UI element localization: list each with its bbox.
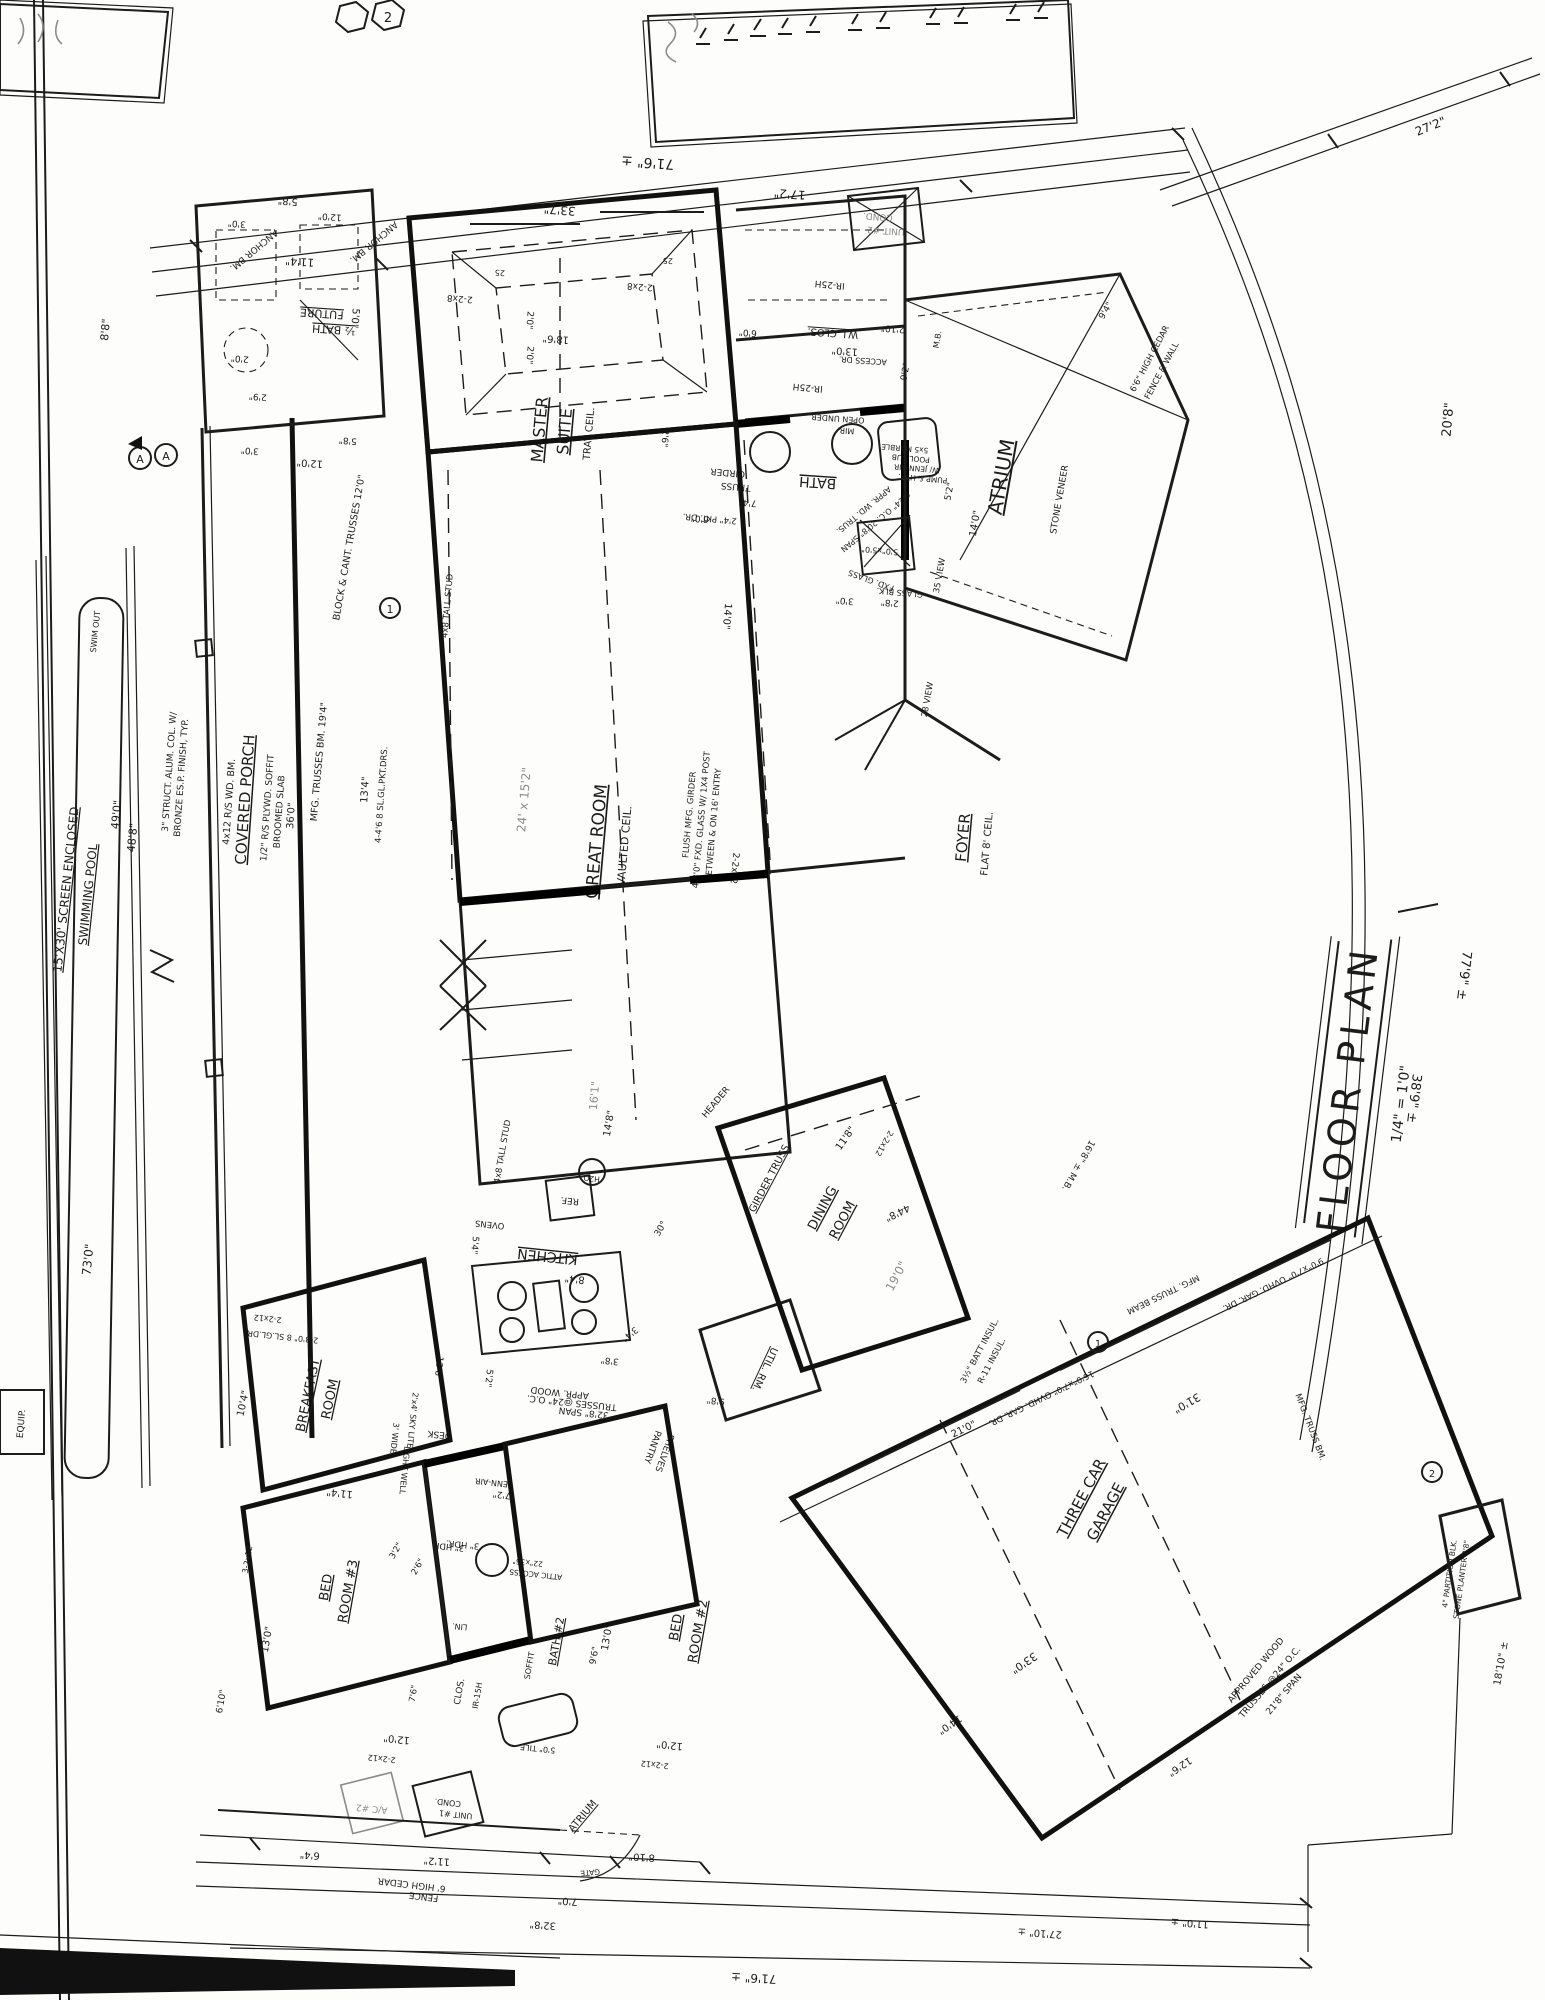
master-name-2: SUITE <box>553 408 576 456</box>
master-tick-1: 25 <box>494 268 505 278</box>
dim-top-2: 17'2" <box>773 186 806 202</box>
porch-note-2: BROOMED SLAB <box>272 775 287 849</box>
future-dim-2: 2'9" <box>248 390 267 401</box>
wic-name: W.I. CLOS. <box>807 325 858 340</box>
atrium-dim-2: 5'2" <box>944 482 957 502</box>
master-suite: MASTER SUITE TRAY CEIL. 18'6" 2'0" 2'0" … <box>409 190 736 463</box>
wic-access: ACCESS DR. <box>838 354 887 366</box>
svg-text:A: A <box>162 450 170 463</box>
fence-dim-3: 7'0" <box>557 1894 578 1906</box>
atrium-stone-veneer: STONE VENEER <box>1049 464 1071 534</box>
garage: THREE CAR GARAGE 31'0" 33'0" 21'0" 14'0"… <box>780 1202 1492 1838</box>
equipment-pads: COND. UNIT #1 A/C #2 <box>341 1772 484 1837</box>
bath-dim-2: 3'0" <box>835 594 854 606</box>
great-room-name: GREAT ROOM <box>582 783 612 899</box>
cond-unit-1b: UNIT #1 <box>439 1808 473 1820</box>
bed3-name-2: ROOM #3 <box>336 1559 362 1625</box>
title-block: FLOOR PLAN 1/4" = 1'0" <box>1294 928 1429 1248</box>
hex-markers-top: 2 <box>336 0 404 32</box>
marble-tub: 5x5 MARBLE POOL TUB W/ JENN-AIR PUMP & H… <box>877 417 948 485</box>
porch-truss-note-2: MFG. TRUSSES BM. 19'4" <box>309 702 330 822</box>
jennair-label: JENN-AIR <box>474 1476 512 1489</box>
gate-label: GATE <box>580 1867 601 1878</box>
porch-doors-note: 4-4'6 8 SL.GL.PKT.DRS. <box>374 746 391 843</box>
pool-equipment: EQUIP. <box>0 1390 44 1454</box>
stone-planter: 4" PARTITION BLK. STONE PLANTER 2'8" 18'… <box>1308 1500 1520 1952</box>
bath2-tile: 5'0" TILE <box>520 1742 556 1755</box>
fence-dim-1: 6'4" <box>299 1848 320 1860</box>
h2o-label: H2O <box>583 1173 600 1184</box>
fence-dim-4: 8'10" <box>628 1850 655 1863</box>
kitchen-name: KITCHEN <box>517 1245 579 1267</box>
future-dim-3: 2'0" <box>230 352 249 363</box>
equip-label: EQUIP. <box>16 1409 28 1439</box>
foyer-name: FOYER <box>952 813 974 863</box>
master-dim-1: 2'0" <box>523 311 535 330</box>
kitchen: KITCHEN 8'4" REF. H2O OVENS 5'4" 5'2" 13… <box>388 872 790 1551</box>
dining-dim: 11'8" <box>834 1125 858 1153</box>
svg-text:2: 2 <box>1429 1469 1435 1480</box>
bed2-dim-2: 12'0" <box>656 1738 683 1752</box>
cond-unit-1a: COND. <box>434 1797 461 1809</box>
cooktop-island <box>472 1252 630 1354</box>
dim-planter: 18'10" ± <box>1492 1641 1511 1687</box>
wall-marker-garage-2: 2 <box>1422 1462 1442 1482</box>
counter-lines <box>462 950 572 1060</box>
great-room: GREAT ROOM VAULTED CEIL. 24' x 15'2" FLU… <box>428 258 770 1184</box>
tub <box>496 1691 579 1748</box>
dim-left-v: 8'8" <box>98 318 113 341</box>
cond-unit-2-label2: UNIT #2 <box>867 224 905 237</box>
stud-wall-2: 4x8 TALL STUD <box>493 1119 514 1185</box>
wic-dim-2: 2'10" <box>881 322 905 334</box>
utility-room: UTIL. RM. 9'8" <box>700 1300 820 1420</box>
stud-wall-1: 4x8 TALL STUD <box>440 573 456 639</box>
attic-access-1: 22"x36" <box>512 1556 543 1568</box>
corner-sketch-topcenter <box>643 0 1077 147</box>
future-dim-top: 5'8" <box>277 194 298 206</box>
master-dim-1b: 2'0" <box>523 346 535 365</box>
angle-note: 30° <box>653 1220 670 1239</box>
svg-text:1: 1 <box>387 603 394 616</box>
garage-beam-1: MFG. TRUSS BEAM <box>1125 1272 1201 1316</box>
bath-fxd-1: 5'0"x5'0" <box>861 544 899 556</box>
master-ceil: TRAY CEIL. <box>582 407 598 462</box>
porch-name: COVERED PORCH <box>231 734 258 865</box>
porch-truss-note-1: BLOCK & CANT. TRUSSES 12'0" <box>331 474 368 621</box>
bottom-dim-7: 11'0" ± <box>1170 1916 1209 1930</box>
bath2-ir: IR-15H <box>471 1682 484 1710</box>
util-dim: 9'8" <box>706 1394 725 1406</box>
bath2-dim-1: 3'2" <box>388 1541 405 1561</box>
garage-dim-6: 12'6" <box>1165 1754 1193 1778</box>
great-room-pencil: 24' x 15'2" <box>514 767 534 833</box>
lightwell-1: 3' WIDE <box>388 1422 400 1454</box>
bath2-dim-3: 7'6" <box>408 1684 421 1703</box>
bath-mirror-2: MIR. <box>837 425 855 435</box>
bath-dim-3: 2'8" <box>880 596 899 608</box>
kitchen-dim-1: 8'4" <box>564 1272 585 1285</box>
bottom-overall-dim: 71'6" ± <box>731 1970 777 1986</box>
bed3-dim-2: 12'0" <box>383 1732 410 1746</box>
breakfast-header: 2-2x12 <box>253 1313 282 1325</box>
future-half-bath: FUTURE ½ BATH 5'0" 2'9" 2'0" ANCHOR BM. … <box>196 190 399 469</box>
bath2-dim-2: 2'6" <box>410 1557 427 1577</box>
future-anchor-1: ANCHOR BM. <box>227 227 279 273</box>
master-header-2: 2-2x8 <box>626 280 653 292</box>
foyer: FOYER FLAT 8' CEIL. 2-2x12 30° <box>653 590 1000 1238</box>
dim-right-long: 77'9" ± <box>1453 950 1474 1001</box>
atrium-lower-label: ATRIUM <box>567 1798 600 1834</box>
svg-text:A: A <box>136 453 144 466</box>
bedroom-2: BED ROOM #2 13'0" 12'0" 2-2x12 <box>505 1406 711 1770</box>
bath2-name: BATH #2 <box>546 1616 567 1666</box>
great-dim-1: 14'8" <box>602 1110 617 1138</box>
bed3-header: 2-2x12 <box>367 1753 396 1765</box>
atrium-view-1: 35 VIEW <box>932 557 948 594</box>
bedroom-3: BED ROOM #3 13'0" 12'0" 2-2x12 6'10" 3-2… <box>215 1462 450 1764</box>
cond-unit-2-label: COND. <box>863 210 894 222</box>
ref-label: REF. <box>560 1194 579 1206</box>
master-header-1: 2-2x8 <box>446 292 473 304</box>
great-dim-2: 14'0" <box>720 603 733 630</box>
pool-dim-a: 49'0" <box>109 799 125 829</box>
atrium-dim-4: 9'4" <box>1097 301 1115 322</box>
skylite-label: 2'x4' SKY LITE <box>405 1392 420 1449</box>
wall-marker-1: 1 <box>380 598 400 618</box>
garage-dim-2: 33'0" <box>1008 1649 1039 1676</box>
section-marker-a: A A <box>128 436 177 469</box>
bed3-dim-1: 13'0" <box>260 1626 275 1654</box>
wall-marker-garage-1: 1 <box>1088 1332 1108 1352</box>
fence-dim-5: 32'8" <box>529 1918 556 1931</box>
bed3-name-1: BED <box>317 1573 336 1602</box>
atrium-name: ATRIUM <box>983 437 1020 516</box>
atrium-dim-3: 9'2" <box>900 362 913 382</box>
bed2-name-1: BED <box>667 1613 686 1642</box>
garage-dim-5: 44'8" <box>883 1202 912 1223</box>
ir-note-2: IR-25H <box>792 381 823 394</box>
rear-fence: 6'4" 11'2" 7'0" 8'10" 32'8" 6' HIGH CEDA… <box>196 1798 1312 1986</box>
bath2-soffit: SOFFIT <box>523 1651 537 1680</box>
breakfast-dim-1: 10'4" <box>235 1389 251 1417</box>
hex-marker-2: 2 <box>384 11 392 26</box>
dining-header: HEADER <box>701 1085 733 1120</box>
breakfast-name-2: ROOM <box>319 1378 342 1421</box>
pool-name-2: SWIMMING POOL <box>76 843 101 946</box>
scan-black-bar <box>0 1948 515 1995</box>
wic-dim-1: 6'0" <box>738 326 757 337</box>
garage-dim-1: 31'0" <box>1171 1390 1203 1416</box>
attic-access-2: ATTIC ACCESS <box>509 1567 563 1582</box>
bed3-dim-3: 6'10" <box>215 1689 229 1714</box>
kitchen-dim-7: 3'8" <box>600 1354 619 1366</box>
atrium-dim-1: 14'0" <box>968 510 983 538</box>
dim-right-top: 20'8" <box>1440 402 1458 438</box>
foyer-ceil: FLAT 8' CEIL. <box>979 811 996 876</box>
bath2-linen: LIN. <box>452 1621 468 1632</box>
great-room-ceil: VAULTED CEIL. <box>615 805 635 886</box>
bed2-header: 2-2x12 <box>640 1759 669 1771</box>
future-dim-9: 3'0" <box>240 444 259 455</box>
pool-dim-b: 48'8" <box>125 822 141 852</box>
future-bath-name-1: FUTURE <box>299 305 344 321</box>
garage-beam-2: MFG. TRUSS BM. <box>1292 1392 1327 1462</box>
kitchen-dim-6: 7'2" <box>492 1488 511 1500</box>
bottom-dim-6: 27'10" ± <box>1017 1925 1062 1939</box>
covered-porch: COVERED PORCH 1/2" R/S PLYWD. SOFFIT BRO… <box>128 418 400 1448</box>
dining-pencil: 19'0" <box>883 1259 910 1294</box>
util-name: UTIL. RM. <box>749 1345 779 1392</box>
bath-name: BATH <box>799 473 837 492</box>
bath-dim-4: 6'0" <box>690 512 709 523</box>
porch-dim: 36'0" <box>285 802 298 829</box>
ac2-label: A/C #2 <box>356 1801 388 1814</box>
ovens-label: OVENS <box>475 1217 505 1230</box>
pool-swim-out: SWIM OUT <box>89 610 102 653</box>
future-dim-8: 12'0" <box>296 456 323 469</box>
dining-hdr2: 2-2x12 <box>873 1129 895 1158</box>
breakfast-name-1: BREAKFAST <box>293 1357 323 1433</box>
atrium-mb: M.B. <box>932 330 944 349</box>
great-pencil-2: 16'1" <box>587 1081 602 1111</box>
master-name-1: MASTER <box>527 396 552 463</box>
future-dim-5: 3'0" <box>227 217 246 228</box>
bath-mirror-1: OPEN UNDER <box>810 412 864 425</box>
porch-dim-2: 13'4" <box>359 776 372 803</box>
ir-note-1: IR-25H <box>814 278 845 291</box>
scanned-floor-plan-sheet: 2 27'2" 20'8" 77'9" ± 38'9" ± FLOOR PLAN… <box>0 0 1545 2000</box>
site-boundary-arc: 20'8" 77'9" ± 38'9" ± <box>1183 128 1474 1452</box>
dim-top-overall: 71'6" ± <box>621 152 675 172</box>
dining-mb: 16'8" ± M.B. <box>1059 1138 1096 1192</box>
corner-sketch-topleft <box>0 0 173 103</box>
future-dim-6: 12'0" <box>318 210 342 222</box>
svg-text:1: 1 <box>1095 1339 1101 1350</box>
fence-dim-2: 11'2" <box>423 1854 450 1867</box>
master-dim: 18'6" <box>542 332 569 345</box>
floor-plan-drawing: 2 27'2" 20'8" 77'9" ± 38'9" ± FLOOR PLAN… <box>0 0 1545 2000</box>
bed2-name-2: ROOM #2 <box>686 1599 712 1665</box>
kitchen-dim-3: 5'2" <box>482 1369 494 1388</box>
master-tick-2: 25 <box>662 256 673 266</box>
bath2-closet: CLOS. <box>453 1678 467 1706</box>
future-dim-1: 5'0" <box>348 308 361 329</box>
kitchen-dim-2: 5'4" <box>468 1236 480 1255</box>
dining-room: DINING ROOM 19'0" 11'8" GIRDER TRUSS HEA… <box>701 1078 1097 1386</box>
future-dim-7: 5'8" <box>338 434 357 445</box>
pool-dim-length: 73'0" <box>79 1243 96 1276</box>
atrium: ATRIUM 14'0" 5'2" 9'2" 9'4" M.B. 35 VIEW… <box>900 274 1188 718</box>
